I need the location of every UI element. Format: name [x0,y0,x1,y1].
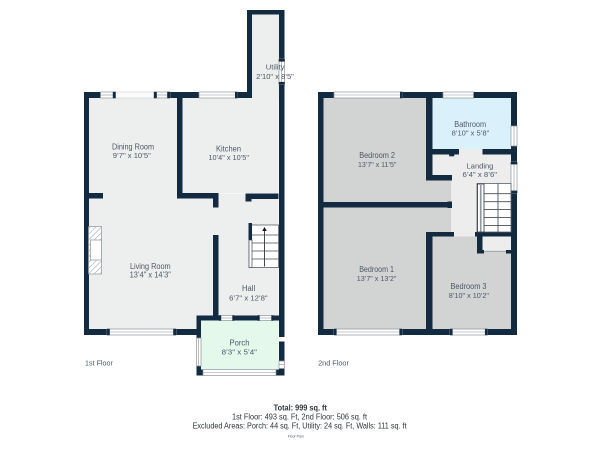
svg-text:2’10" x 8’5": 2’10" x 8’5" [256,72,294,81]
svg-text:2nd Floor: 2nd Floor [318,359,349,368]
svg-text:Total: 999 sq. ft: Total: 999 sq. ft [274,402,327,412]
svg-text:Hall: Hall [242,284,255,293]
svg-text:8’10" x 10’2": 8’10" x 10’2" [449,291,490,300]
svg-text:13’7" x 11’5": 13’7" x 11’5" [358,160,397,169]
svg-text:9’7" x 10’5": 9’7" x 10’5" [113,151,151,160]
svg-text:1st Floor: 1st Floor [85,359,113,368]
svg-text:Living Room: Living Room [130,261,171,271]
svg-text:Utility: Utility [266,63,285,72]
svg-text:Bedroom 1: Bedroom 1 [359,265,394,274]
svg-text:8’3" x 5’4": 8’3" x 5’4" [222,348,258,357]
svg-text:13’4" x 14’3": 13’4" x 14’3" [130,271,172,280]
svg-text:Porch: Porch [230,339,250,348]
svg-text:10’4" x 10’5": 10’4" x 10’5" [208,153,249,162]
svg-text:6’4" x 8’6": 6’4" x 8’6" [463,170,498,179]
svg-text:8’10" x 5’8": 8’10" x 5’8" [452,129,490,138]
svg-text:13’7" x 13’2": 13’7" x 13’2" [357,274,397,283]
svg-text:Bedroom 3: Bedroom 3 [451,282,487,291]
svg-text:Dining Room: Dining Room [112,142,154,152]
svg-text:Excluded Areas: Porch: 44 sq.: Excluded Areas: Porch: 44 sq. Ft, Utilit… [193,421,408,430]
svg-text:Bedroom 2: Bedroom 2 [359,151,395,160]
svg-text:Floor Plan: Floor Plan [288,434,304,438]
svg-text:1st Floor: 493 sq. Ft, 2nd Flo: 1st Floor: 493 sq. Ft, 2nd Floor: 506 sq… [232,413,368,422]
svg-text:6’7" x 12’8": 6’7" x 12’8" [229,293,268,302]
